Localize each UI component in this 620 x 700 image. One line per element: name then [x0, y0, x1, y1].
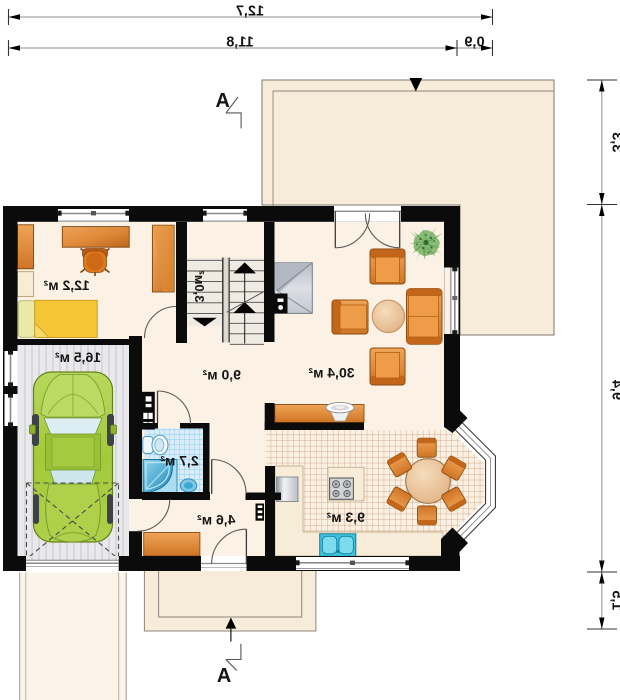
svg-text:A: A: [215, 90, 229, 112]
svg-text:3,0м²: 3,0м²: [192, 270, 207, 303]
svg-text:9,3 м²: 9,3 м²: [326, 509, 365, 525]
svg-text:4,6 м²: 4,6 м²: [197, 512, 236, 528]
svg-text:12,2 м²: 12,2 м²: [43, 277, 89, 293]
svg-text:2,7 м²: 2,7 м²: [160, 453, 199, 469]
svg-text:9,0 м²: 9,0 м²: [202, 367, 241, 383]
svg-text:16,5 м²: 16,5 м²: [55, 349, 101, 365]
svg-text:9,4: 9,4: [609, 380, 620, 400]
svg-text:11,8: 11,8: [226, 35, 253, 51]
svg-text:3,3: 3,3: [609, 132, 620, 152]
svg-text:A: A: [217, 665, 231, 687]
svg-text:12,7: 12,7: [236, 4, 264, 20]
svg-text:1,5: 1,5: [609, 590, 620, 610]
svg-text:30,4 м²: 30,4 м²: [308, 365, 354, 381]
svg-text:0,9: 0,9: [464, 35, 484, 51]
